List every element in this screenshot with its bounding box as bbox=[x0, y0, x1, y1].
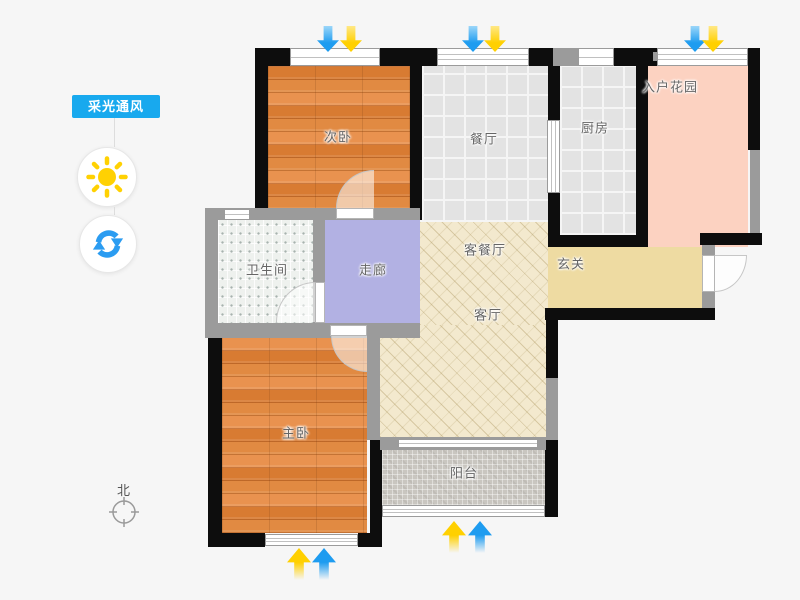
floorplan-viewer-page: { "app": { "background": "#f6f6f6" }, "t… bbox=[0, 0, 800, 600]
wall-segment bbox=[545, 308, 715, 320]
wall-segment bbox=[748, 48, 760, 150]
door-panel bbox=[330, 325, 367, 336]
window bbox=[398, 439, 538, 448]
room-kitchen[interactable] bbox=[560, 64, 636, 235]
wall-segment bbox=[702, 292, 715, 308]
wall-segment bbox=[205, 208, 218, 335]
room-label-balcony: 阳台 bbox=[450, 463, 478, 482]
wall-segment bbox=[546, 320, 558, 378]
wall-segment bbox=[410, 48, 422, 220]
wall-segment bbox=[548, 193, 560, 237]
wall-segment bbox=[545, 440, 558, 517]
window bbox=[224, 209, 250, 220]
wall-segment bbox=[548, 235, 648, 247]
door-panel bbox=[315, 282, 325, 323]
wall-segment bbox=[370, 440, 382, 547]
room-label-corridor: 走廊 bbox=[359, 260, 387, 279]
wall-segment bbox=[208, 333, 222, 547]
wall-segment bbox=[750, 150, 760, 233]
wall-segment bbox=[702, 245, 715, 255]
wind-arrow-up-icon bbox=[468, 521, 492, 553]
wall-segment bbox=[255, 48, 268, 213]
wall-segment bbox=[208, 533, 265, 547]
room-living[interactable] bbox=[380, 325, 546, 437]
room-label-living-dining: 客餐厅 bbox=[464, 240, 506, 259]
room-label-kitchen: 厨房 bbox=[581, 118, 609, 137]
window bbox=[437, 48, 529, 66]
room-label-bedroom2: 次卧 bbox=[324, 127, 352, 146]
room-label-bathroom: 卫生间 bbox=[246, 260, 288, 279]
wall-segment bbox=[205, 323, 420, 338]
floor-plan-canvas: 次卧 餐厅 厨房 入户花园 卫生间 走廊 客餐厅 玄关 客厅 主卧 阳台 bbox=[0, 0, 800, 600]
door-panel bbox=[336, 208, 374, 219]
room-label-entry-garden: 入户花园 bbox=[642, 77, 698, 96]
sun-arrow-up-icon bbox=[287, 548, 311, 580]
window bbox=[578, 48, 614, 66]
window bbox=[657, 48, 748, 66]
room-label-living: 客厅 bbox=[474, 305, 502, 324]
wall-segment bbox=[553, 48, 580, 66]
room-label-master-bedroom: 主卧 bbox=[282, 423, 310, 442]
window bbox=[265, 534, 358, 546]
wall-segment bbox=[380, 48, 437, 66]
window bbox=[382, 505, 545, 517]
wind-arrow-up-icon bbox=[312, 548, 336, 580]
window bbox=[290, 48, 380, 66]
entry-door-panel bbox=[702, 255, 715, 292]
entry-door-arc bbox=[715, 255, 747, 292]
wall-segment bbox=[548, 60, 560, 122]
wall-segment bbox=[367, 325, 380, 440]
wall-segment bbox=[546, 378, 558, 440]
room-label-hallway: 玄关 bbox=[557, 254, 585, 273]
sun-arrow-up-icon bbox=[442, 521, 466, 553]
room-label-dining: 餐厅 bbox=[470, 129, 498, 148]
wall-segment bbox=[700, 233, 762, 245]
sliding-door bbox=[547, 120, 560, 193]
